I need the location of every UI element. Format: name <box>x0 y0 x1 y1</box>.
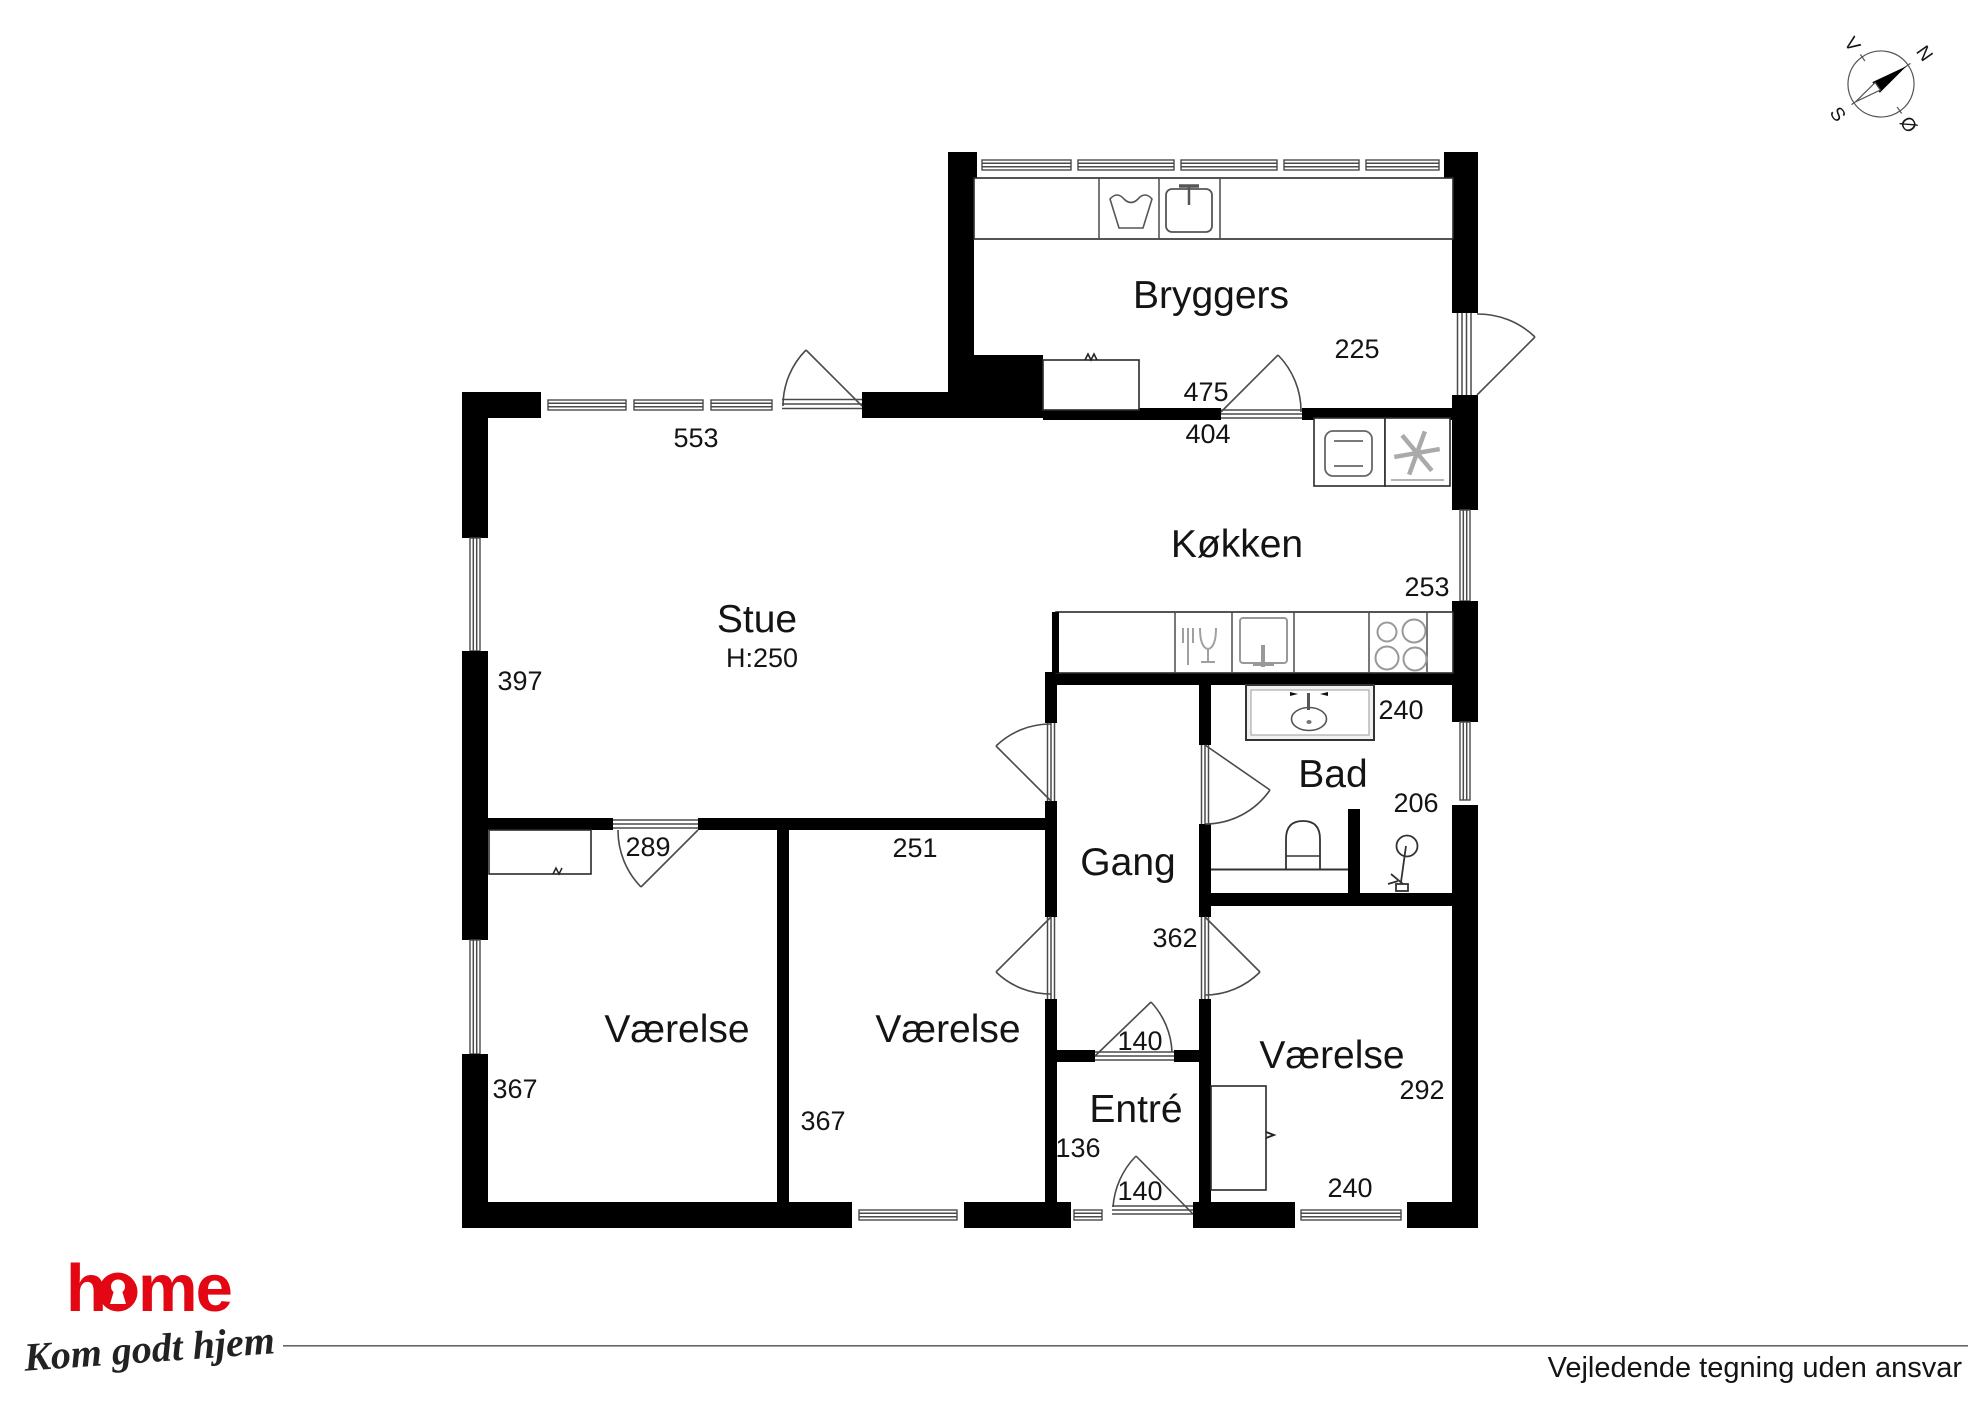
svg-text:475: 475 <box>1183 377 1228 407</box>
svg-text:140: 140 <box>1117 1026 1162 1056</box>
svg-text:Gang: Gang <box>1080 841 1175 884</box>
svg-text:Værelse: Værelse <box>1259 1034 1404 1077</box>
svg-text:289: 289 <box>625 832 670 862</box>
svg-text:H:250: H:250 <box>726 643 798 673</box>
svg-text:553: 553 <box>673 423 718 453</box>
svg-text:367: 367 <box>492 1074 537 1104</box>
svg-text:Køkken: Køkken <box>1171 523 1303 566</box>
svg-text:Stue: Stue <box>717 598 797 641</box>
svg-text:Entré: Entré <box>1089 1088 1182 1131</box>
svg-text:136: 136 <box>1055 1133 1100 1163</box>
svg-text:Bryggers: Bryggers <box>1133 274 1289 317</box>
svg-text:240: 240 <box>1378 695 1423 725</box>
svg-text:me: me <box>138 1251 231 1326</box>
svg-text:251: 251 <box>892 833 937 863</box>
svg-text:Vejledende tegning uden ansvar: Vejledende tegning uden ansvar <box>1548 1352 1963 1384</box>
svg-text:Værelse: Værelse <box>604 1008 749 1051</box>
svg-text:397: 397 <box>497 666 542 696</box>
svg-text:Værelse: Værelse <box>875 1008 1020 1051</box>
svg-text:225: 225 <box>1334 334 1379 364</box>
svg-text:367: 367 <box>800 1106 845 1136</box>
svg-text:404: 404 <box>1185 419 1230 449</box>
svg-text:253: 253 <box>1404 572 1449 602</box>
svg-text:362: 362 <box>1152 923 1197 953</box>
svg-text:292: 292 <box>1399 1075 1444 1105</box>
svg-text:140: 140 <box>1117 1176 1162 1206</box>
svg-text:240: 240 <box>1327 1173 1372 1203</box>
svg-text:Bad: Bad <box>1298 753 1367 796</box>
svg-text:206: 206 <box>1393 788 1438 818</box>
